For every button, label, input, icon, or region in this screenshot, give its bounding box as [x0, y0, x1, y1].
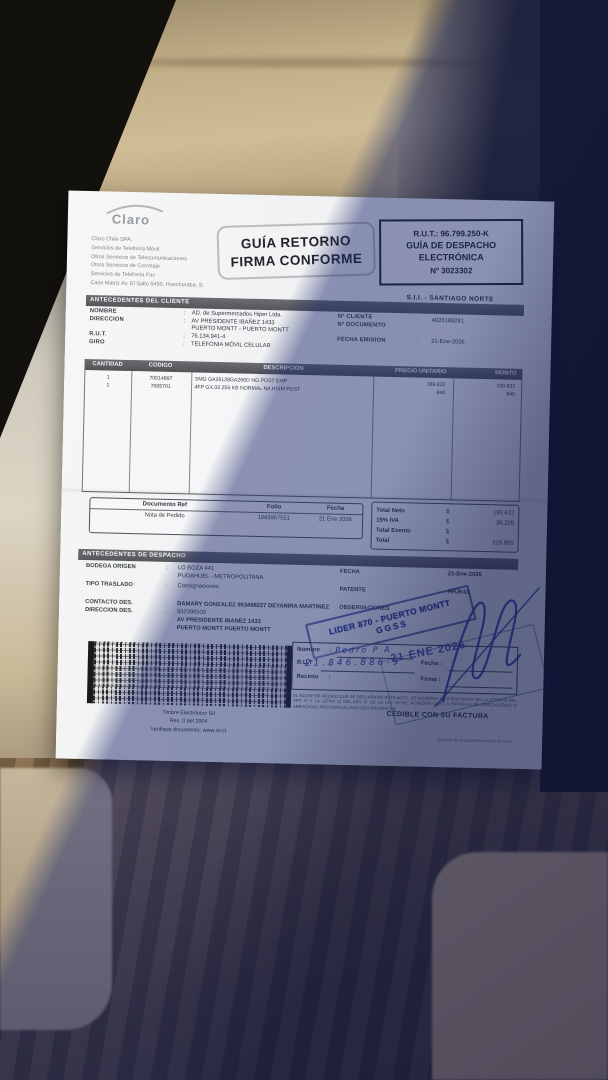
cell-folio: 1083967551 [239, 515, 309, 523]
totals-box: Total Neto $ 190.672 19% IVA $ 36.228 To… [370, 502, 519, 553]
pen-signature [429, 579, 544, 714]
seat-patch-right [432, 852, 608, 1080]
bodega-origen-2: PUDAHUEL - METROPOLITANA [178, 573, 264, 581]
client-giro: TELEFONIA MÓVIL CELULAR [191, 341, 271, 349]
handwritten-name: Pedro P A [335, 645, 391, 655]
field-label: Nº DOCUMENTO [337, 322, 385, 329]
handwritten-rut: 21.846.886-9 [305, 658, 402, 669]
reference-table: Documento Ref Folio Fecha Nota de Pedido… [89, 497, 364, 539]
return-stamp-line1: GUÍA RETORNO [241, 233, 352, 251]
separator: : [165, 609, 167, 615]
dispatch-guide-document: Claro Claro Chile SPA. Servicios de Tele… [56, 191, 555, 770]
cell-precio: 840 [372, 388, 452, 396]
direccion-destino-2: AV PRESIDENTE IBANEZ 1433 [177, 617, 261, 625]
field-label: R.U.T. [89, 331, 106, 337]
items-table-body: 1 70014897 SMG GA26128GA266D NG POST EMP… [82, 370, 523, 502]
field-label: DIRECCION [90, 316, 124, 323]
dispatch-date: 21-Ene-2026 [448, 571, 482, 578]
total-label: Total [376, 536, 446, 548]
emission-date: 21-Ene-2026 [431, 339, 465, 346]
separator: : [166, 565, 168, 571]
separator: : [183, 333, 185, 339]
col-header: Documento Ref [90, 500, 239, 509]
footer-provider-text: Solución de Factura Electrónica de www… [374, 736, 516, 744]
bodega-origen-1: LO BOZA 441 [178, 565, 214, 572]
rut-box: R.U.T.: 96.799.250-K GUÍA DE DESPACHO EL… [379, 219, 523, 286]
guide-number: Nº 3023302 [430, 267, 472, 276]
separator: : [438, 571, 440, 577]
dispatch-section-header: ANTECEDENTES DE DESPACHO [78, 549, 518, 569]
col-header: Fecha [309, 505, 363, 512]
field-label: NOMBRE [90, 308, 117, 315]
company-info: Claro Chile SPA. Servicios de Telefonía … [90, 235, 205, 290]
field-label: FECHA EMISION [337, 337, 386, 344]
client-number: 4026189281 [432, 318, 464, 325]
separator: : [184, 318, 186, 324]
separator: : [183, 341, 185, 347]
cell-monto: 840 [451, 390, 521, 398]
signature-line [321, 670, 415, 673]
client-address-2: PUERTO MONTT - PUERTO MONTT [191, 325, 288, 333]
separator: : [418, 318, 420, 324]
separator: : [184, 310, 186, 316]
field-label: Nº CLIENTE [338, 314, 373, 321]
total-value: 226.900 [472, 538, 514, 549]
photo-scene: Claro Claro Chile SPA. Servicios de Tele… [0, 0, 608, 1080]
field-label: CONTACTO DES. [85, 599, 133, 606]
return-stamp: GUÍA RETORNO FIRMA CONFORME [216, 221, 376, 280]
rut-value: R.U.T.: 96.799.250-K [413, 229, 489, 238]
field-label: GIRO [89, 339, 105, 345]
col-header: Folio [239, 504, 309, 512]
total-row: Total $ 226.900 [376, 536, 514, 549]
field-label: DIRECCION DES. [85, 607, 133, 614]
doc-type-line1: GUÍA DE DESPACHO [406, 240, 496, 251]
cell-cantidad: 1 [85, 374, 131, 381]
claro-logo: Claro [112, 212, 151, 228]
direccion-destino-3: PUERTO MONTT PUERTO MONTT [177, 625, 271, 633]
cell-codigo: 7005701 [131, 383, 191, 390]
tipo-traslado: Consignaciones [177, 583, 218, 590]
field-label: BODEGA ORIGEN [86, 563, 136, 570]
pdf417-barcode [87, 641, 292, 708]
field-label: PATENTE [339, 587, 365, 594]
client-rut: 76.134.941-4 [191, 333, 225, 340]
currency-sign: $ [446, 527, 472, 538]
direccion-destino-1: 932398500 [177, 609, 206, 616]
return-stamp-line2: FIRMA CONFORME [230, 250, 362, 269]
cell-monto: 189.832 [451, 382, 521, 390]
field-label: TIPO TRASLADO [86, 581, 133, 588]
doc-type-line2: ELECTRÓNICA [419, 252, 484, 263]
separator: : [165, 601, 167, 607]
cell-cantidad: 1 [85, 382, 131, 389]
currency-sign: $ [446, 517, 472, 528]
currency-sign: $ [446, 507, 472, 518]
column-divider [129, 371, 133, 492]
field-label: Recinto [296, 674, 318, 680]
seat-patch-left [0, 768, 112, 1030]
cell-fecha: 21 Ene 2026 [308, 516, 362, 523]
separator: : [329, 648, 331, 654]
separator: : [165, 583, 167, 589]
currency-sign: $ [446, 537, 472, 548]
field-label: FECHA [340, 569, 360, 575]
cell-precio: 189.832 [372, 380, 452, 388]
separator: : [328, 675, 330, 681]
column-divider [371, 377, 375, 498]
cell-codigo: 70014897 [131, 375, 191, 382]
client-name: AD. de Supermercados Hiper Ltda. [192, 310, 282, 318]
timbre-caption: Timbre Electrónico SII Res. 0 del 2004 V… [86, 707, 291, 737]
column-divider [189, 372, 193, 493]
cell-doc-ref: Nota de Pedido [90, 511, 239, 520]
company-line: Casa Matriz Av. El Salto 5450, Huechurab… [90, 279, 204, 290]
separator: : [417, 339, 419, 345]
field-label: Nombre [297, 647, 320, 654]
column-divider [451, 378, 455, 499]
